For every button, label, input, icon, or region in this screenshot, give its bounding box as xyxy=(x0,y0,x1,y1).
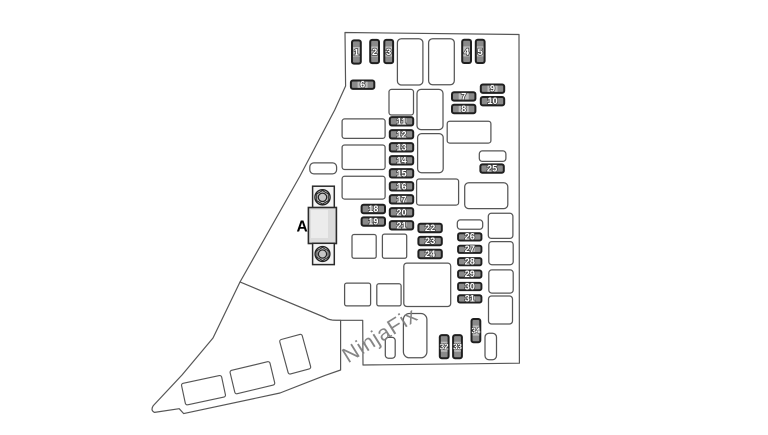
svg-text:9: 9 xyxy=(490,84,495,94)
svg-text:A: A xyxy=(297,219,308,236)
svg-text:14: 14 xyxy=(396,155,407,165)
svg-text:15: 15 xyxy=(396,168,406,178)
svg-text:13: 13 xyxy=(396,142,406,152)
svg-text:2: 2 xyxy=(372,47,377,58)
svg-text:16: 16 xyxy=(396,181,406,191)
svg-text:27: 27 xyxy=(465,244,475,254)
svg-text:17: 17 xyxy=(396,194,406,204)
svg-text:33: 33 xyxy=(453,343,462,352)
svg-text:6: 6 xyxy=(360,80,365,90)
svg-text:21: 21 xyxy=(396,220,406,230)
svg-text:29: 29 xyxy=(465,269,475,279)
svg-text:34: 34 xyxy=(472,327,481,336)
svg-text:18: 18 xyxy=(368,204,378,214)
svg-text:1: 1 xyxy=(354,48,360,59)
svg-text:5: 5 xyxy=(478,47,484,58)
svg-text:26: 26 xyxy=(465,232,475,242)
svg-text:11: 11 xyxy=(397,116,407,126)
svg-text:31: 31 xyxy=(465,294,475,304)
svg-text:22: 22 xyxy=(425,223,435,233)
svg-text:3: 3 xyxy=(386,47,391,58)
svg-text:19: 19 xyxy=(368,217,378,227)
svg-text:8: 8 xyxy=(461,104,466,114)
svg-text:10: 10 xyxy=(487,96,497,106)
svg-text:7: 7 xyxy=(461,91,466,101)
svg-text:32: 32 xyxy=(440,343,449,352)
svg-text:30: 30 xyxy=(465,281,475,291)
svg-text:4: 4 xyxy=(464,47,470,58)
svg-text:25: 25 xyxy=(487,164,497,174)
svg-text:23: 23 xyxy=(425,236,435,246)
svg-text:12: 12 xyxy=(396,129,406,139)
svg-text:20: 20 xyxy=(396,207,406,217)
svg-text:28: 28 xyxy=(465,257,475,267)
svg-text:24: 24 xyxy=(425,249,436,259)
